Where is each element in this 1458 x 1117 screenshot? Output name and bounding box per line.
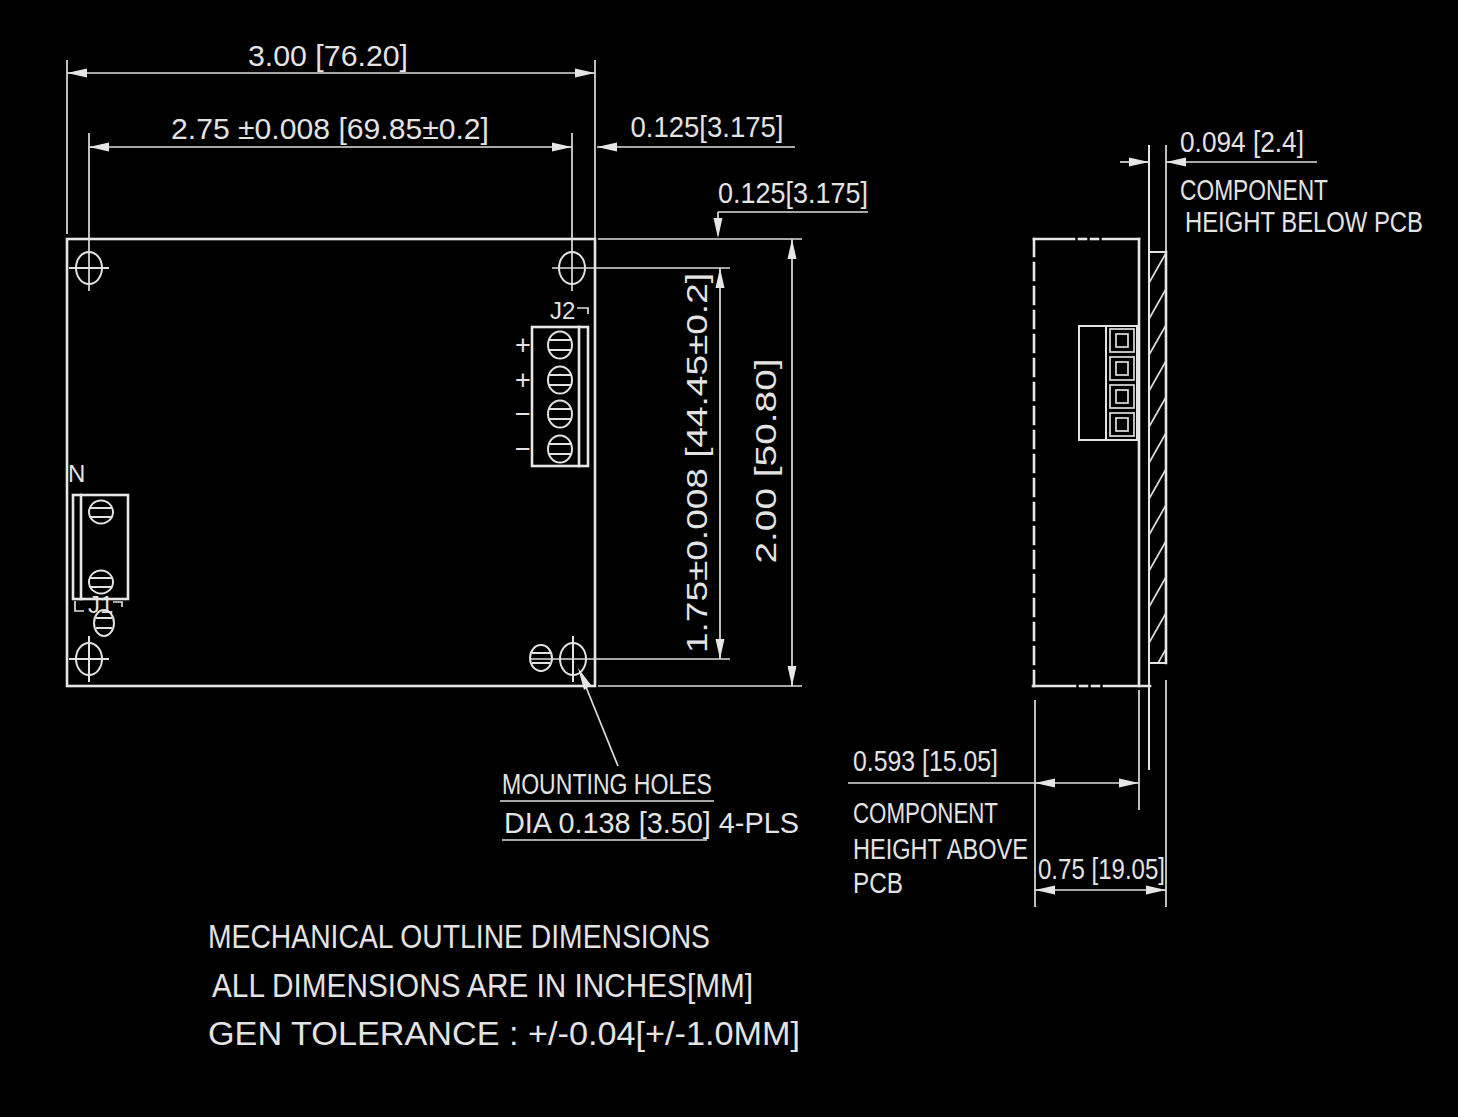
drawing-svg: + + − − J2 J1 N bbox=[0, 0, 1458, 1117]
below-pcb-caption-2: HEIGHT BELOW PCB bbox=[1185, 206, 1423, 238]
screw-symbol-bottom-right bbox=[530, 645, 552, 671]
top-view: + + − − J2 J1 N bbox=[67, 239, 595, 686]
j2-pin-label-2: + bbox=[515, 365, 531, 395]
above-pcb-caption-3: PCB bbox=[853, 867, 903, 899]
below-pcb-caption-1: COMPONENT bbox=[1180, 174, 1328, 206]
footer-note-2: ALL DIMENSIONS ARE IN INCHES[MM] bbox=[212, 966, 753, 1004]
connector-j1: J1 N bbox=[68, 460, 128, 618]
j1-screw-terminals bbox=[89, 501, 113, 594]
above-pcb-caption-1: COMPONENT bbox=[853, 797, 998, 829]
dim-hole-span-y: 1.75±0.008 [44.45±0.2] bbox=[681, 273, 713, 653]
mounting-holes-callout: MOUNTING HOLES DIA 0.138 [3.50] 4-PLS bbox=[500, 668, 799, 840]
mechanical-drawing-canvas: + + − − J2 J1 N bbox=[0, 0, 1458, 1117]
above-pcb-caption-2: HEIGHT ABOVE bbox=[853, 833, 1028, 865]
j2-screw-terminals bbox=[548, 332, 572, 463]
dim-hole-offset-x: 0.125[3.175] bbox=[631, 111, 784, 143]
j2-label: J2 bbox=[550, 297, 575, 324]
dim-overall-height: 2.00 [50.80] bbox=[750, 359, 782, 564]
dim-total-height: 0.75 [19.05] bbox=[1038, 853, 1165, 885]
j2-pin-label-4: − bbox=[515, 434, 531, 464]
j1-label-mark-right bbox=[113, 602, 122, 607]
j2-label-mark bbox=[577, 308, 588, 314]
j1-label: J1 bbox=[88, 591, 113, 618]
connector-j2-side-profile bbox=[1079, 326, 1137, 440]
dim-above-pcb: 0.593 [15.05] bbox=[853, 745, 998, 777]
j2-pin-label-1: + bbox=[515, 330, 531, 360]
line-n-label: N bbox=[68, 460, 85, 487]
j1-label-mark-left bbox=[75, 601, 84, 611]
dim-overall-width: 3.00 [76.20] bbox=[248, 40, 408, 72]
dim-hole-span-x: 2.75 ±0.008 [69.85±0.2] bbox=[171, 113, 489, 145]
mounting-hole-bottom-left bbox=[69, 636, 109, 682]
mounting-note-line2: DIA 0.138 [3.50] 4-PLS bbox=[504, 807, 799, 839]
dim-below-pcb: 0.094 [2.4] bbox=[1180, 126, 1304, 158]
dim-hole-offset-y: 0.125[3.175] bbox=[718, 177, 868, 209]
top-view-dimensions: 3.00 [76.20] 2.75 ±0.008 [69.85±0.2] 0.1… bbox=[67, 40, 868, 840]
footer-note-1: MECHANICAL OUTLINE DIMENSIONS bbox=[208, 917, 710, 955]
j2-pin-label-3: − bbox=[515, 399, 531, 429]
side-view bbox=[1033, 145, 1170, 907]
mounting-note-line1: MOUNTING HOLES bbox=[502, 768, 712, 800]
connector-j2: + + − − J2 bbox=[515, 297, 588, 466]
side-view-dimensions: 0.094 [2.4] COMPONENT HEIGHT BELOW PCB 0… bbox=[848, 126, 1423, 899]
footer-note-3: GEN TOLERANCE : +/-0.04[+/-1.0MM] bbox=[208, 1014, 800, 1052]
footer-notes: MECHANICAL OUTLINE DIMENSIONS ALL DIMENS… bbox=[208, 917, 800, 1052]
